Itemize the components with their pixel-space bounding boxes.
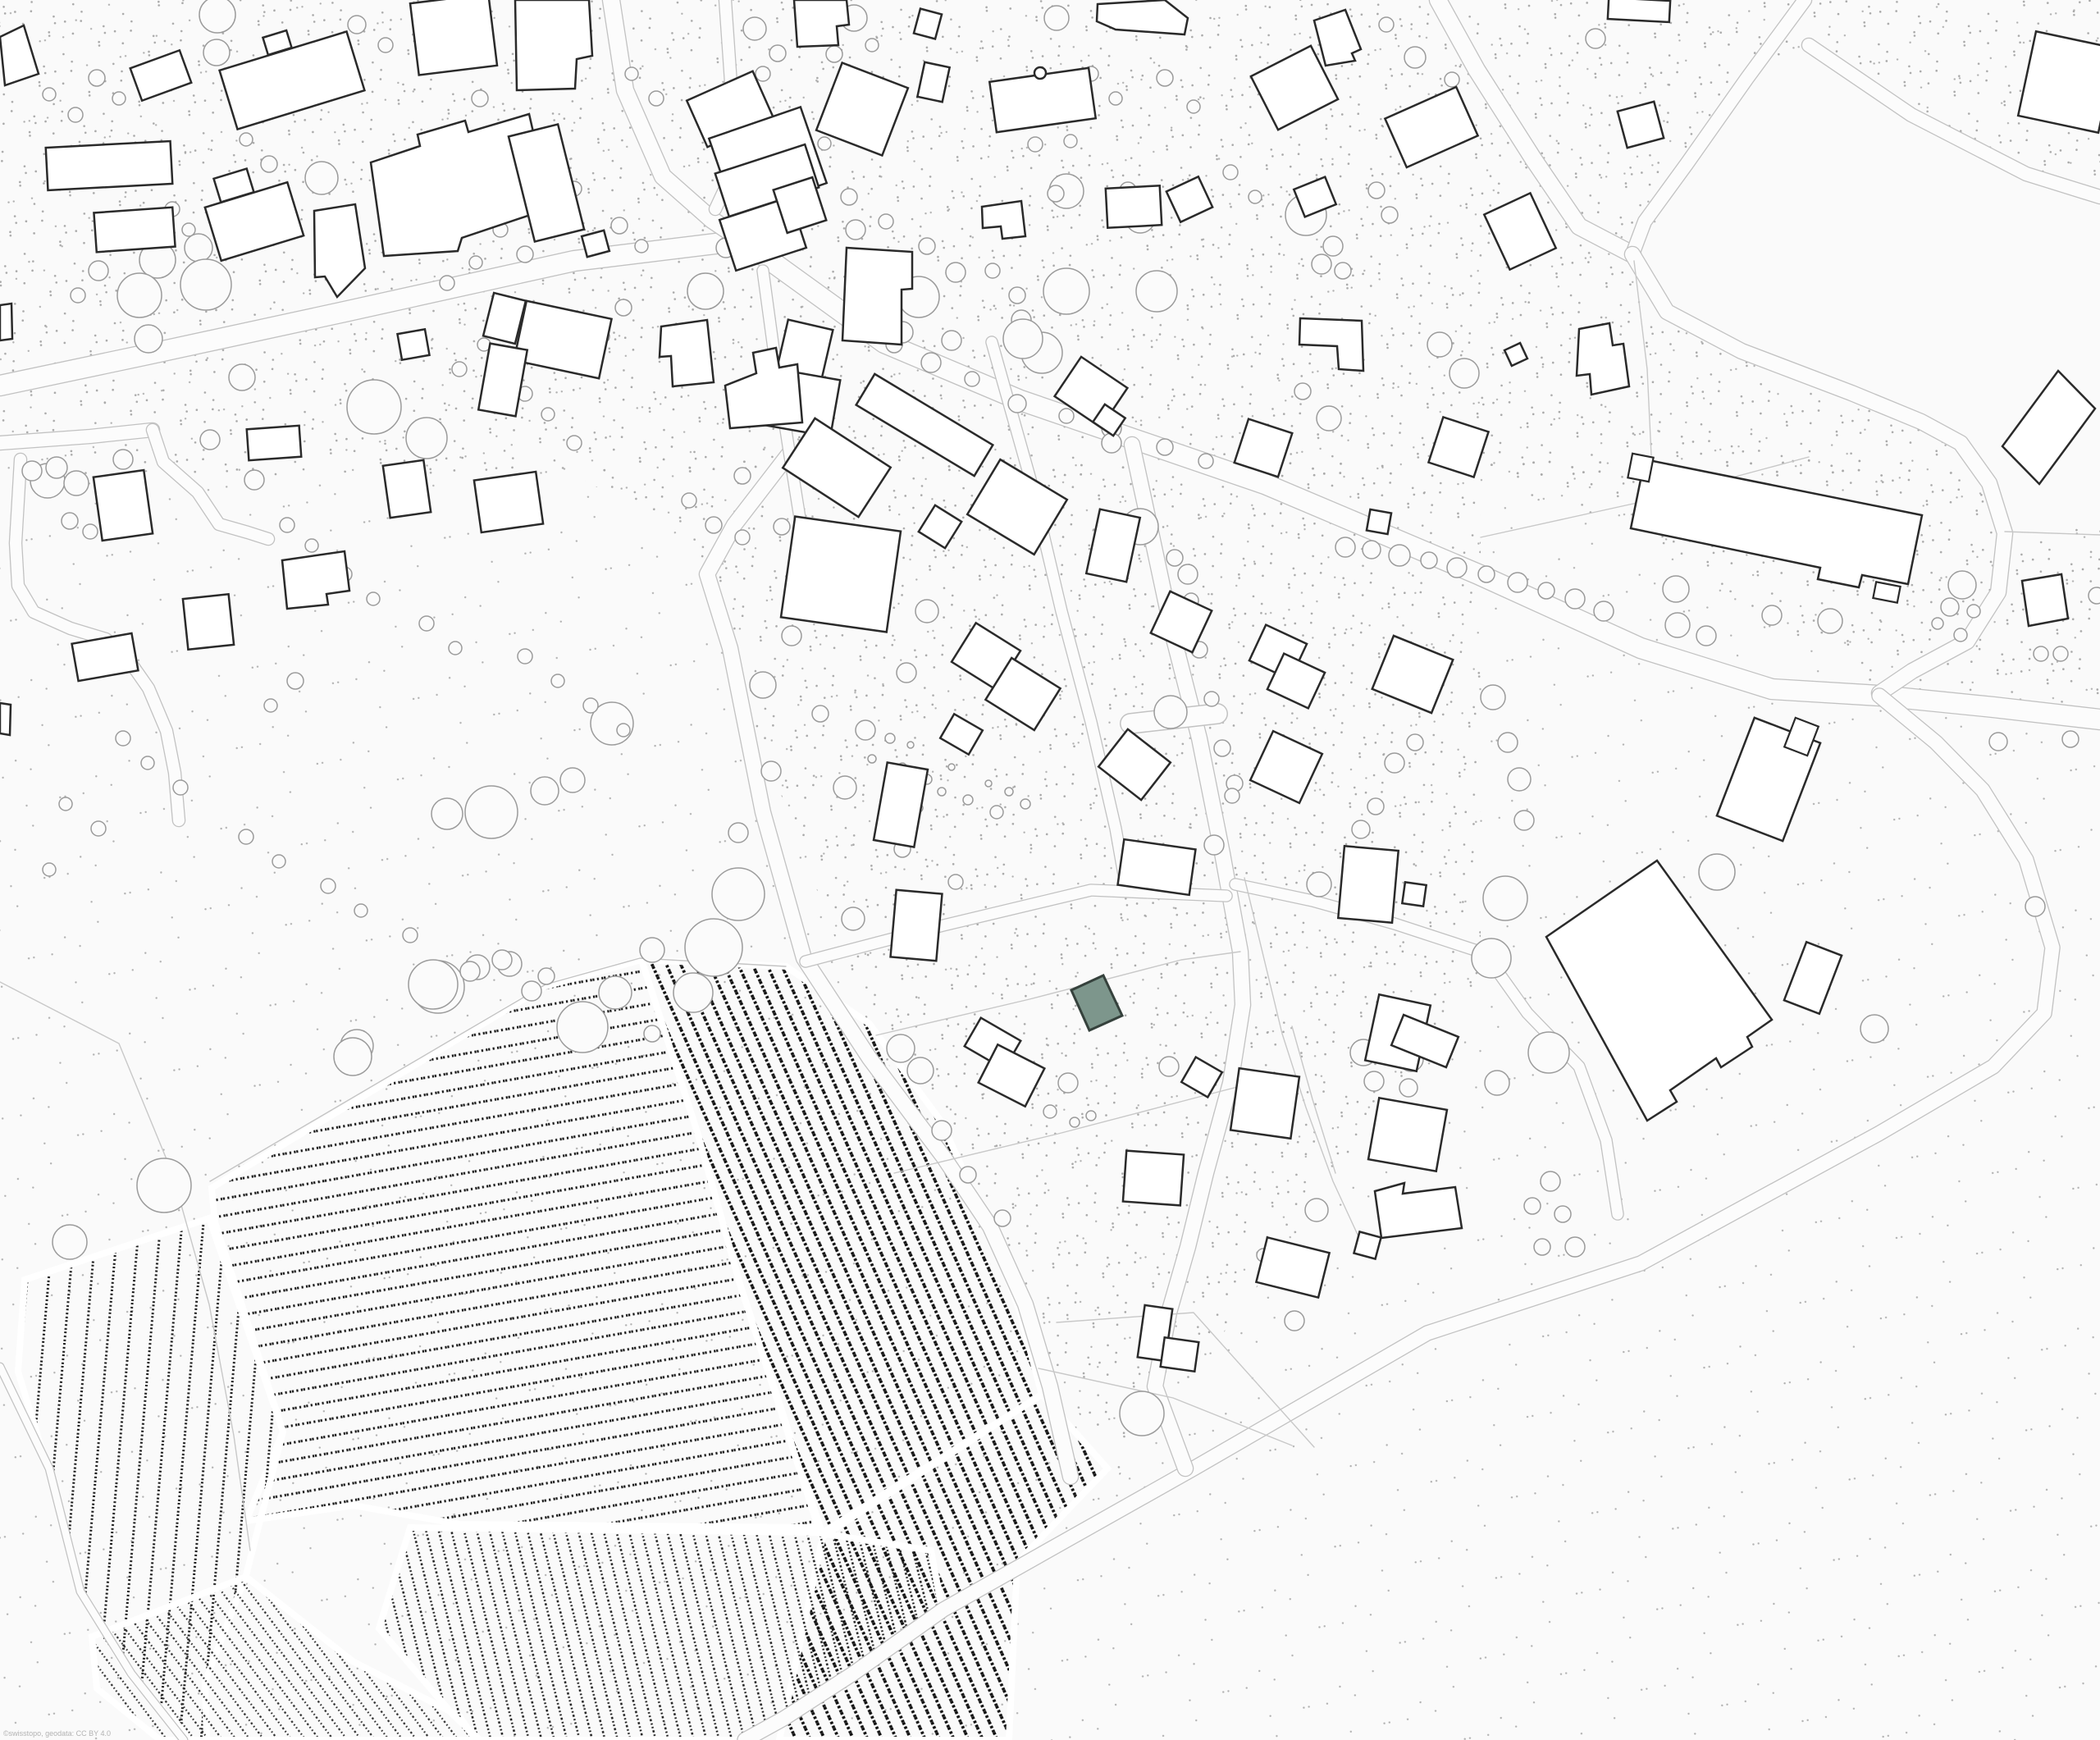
svg-text:©swisstopo, geodata: CC BY 4.0: ©swisstopo, geodata: CC BY 4.0	[3, 1729, 111, 1738]
